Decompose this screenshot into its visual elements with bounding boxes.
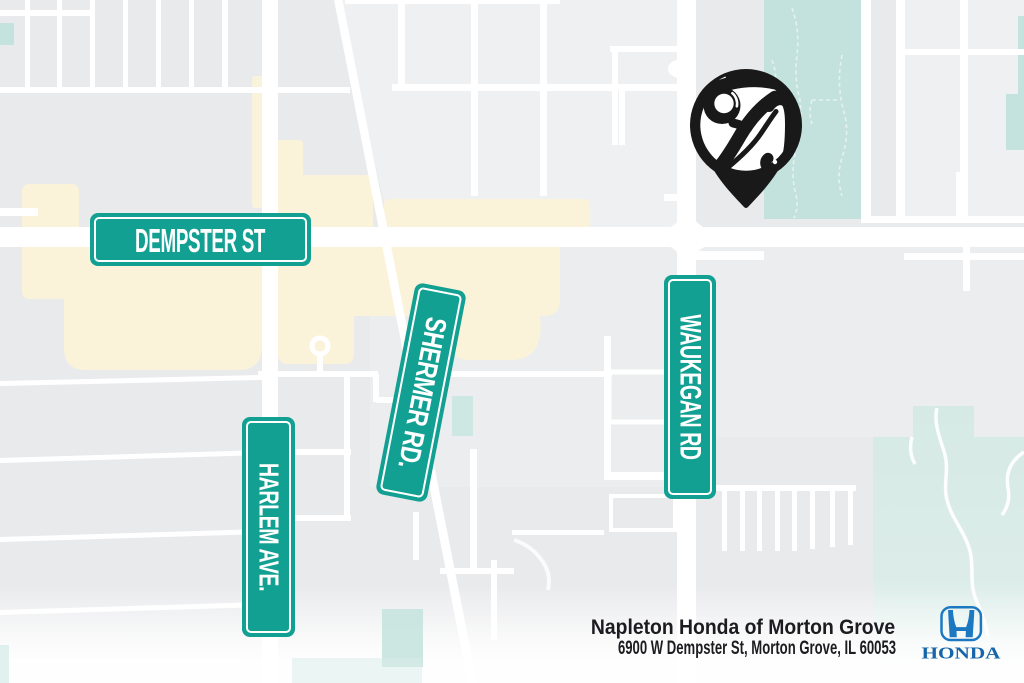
svg-text:HONDA: HONDA: [922, 644, 1001, 663]
